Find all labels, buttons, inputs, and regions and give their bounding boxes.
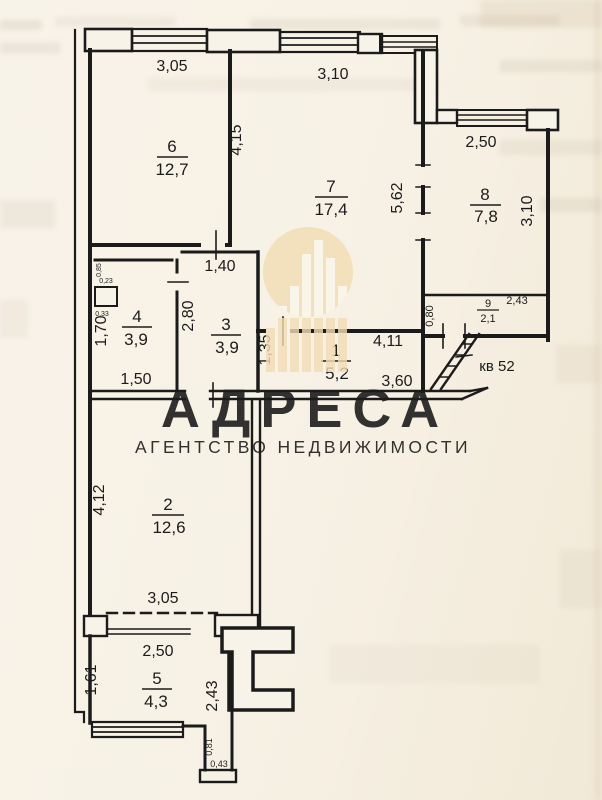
- dim-room5-top: 2,50: [142, 643, 173, 660]
- outer-left-wall: [75, 30, 84, 722]
- svg-text:6: 6: [167, 137, 176, 156]
- svg-text:9: 9: [485, 298, 491, 310]
- room-9-label: 9 2,1: [477, 298, 499, 325]
- dim-vent-c: 0,33: [95, 311, 109, 318]
- watermark-brand-text: АДРЕСА: [161, 379, 449, 439]
- watermark: АДРЕСА АГЕНТСТВО НЕДВИЖИМОСТИ: [135, 227, 471, 457]
- scanned-floor-plan-page: 6 12,7 7 17,4 8 7,8 9 2,1 4 3,9 3 3,9: [0, 0, 602, 800]
- balcony-window: [92, 722, 183, 737]
- watermark-tagline-text: АГЕНТСТВО НЕДВИЖИМОСТИ: [135, 437, 471, 457]
- room-2-label: 2 12,6: [152, 495, 186, 537]
- window-room6: [132, 29, 207, 51]
- svg-text:2: 2: [163, 495, 172, 514]
- svg-text:3,9: 3,9: [124, 330, 148, 349]
- svg-text:5: 5: [152, 669, 161, 688]
- dim-vent-b: 0,23: [99, 278, 113, 285]
- dim-room4-left: 1,70: [93, 315, 110, 346]
- svg-text:8: 8: [480, 185, 489, 204]
- dim-room8-top: 2,50: [465, 134, 496, 151]
- window-room7-left: [280, 32, 360, 52]
- svg-text:4,3: 4,3: [144, 692, 168, 711]
- dim-room8-right: 3,10: [519, 195, 536, 226]
- window-room8: [457, 110, 527, 126]
- room-8-label: 8 7,8: [470, 185, 501, 226]
- wall-pier: [527, 110, 558, 130]
- dim-room5-left: 1,61: [83, 664, 100, 695]
- svg-text:4: 4: [132, 307, 141, 326]
- dim-room2-left: 4,12: [91, 484, 108, 515]
- dim-room6-top: 3,05: [156, 58, 187, 75]
- dim-room9-left: 0,80: [424, 305, 436, 326]
- dim-stub-height: 0,81: [204, 738, 214, 756]
- svg-text:3: 3: [221, 315, 230, 334]
- vent-duct-box: [95, 287, 117, 306]
- wall-pier: [84, 616, 107, 636]
- dim-room4-bottom: 1,50: [120, 371, 151, 388]
- watermark-logo-bars-below: [266, 318, 347, 372]
- room2-window-sill: [107, 629, 190, 634]
- dim-room7-right: 5,62: [389, 182, 406, 213]
- svg-text:12,7: 12,7: [155, 160, 188, 179]
- wall-pier: [85, 29, 132, 51]
- dim-room9-top: 2,43: [506, 295, 527, 307]
- svg-text:12,6: 12,6: [152, 518, 185, 537]
- wall-jog-horizontal: [437, 110, 457, 123]
- svg-text:3,9: 3,9: [215, 338, 239, 357]
- dim-wall-3-4: 2,80: [180, 300, 197, 331]
- room-4-label: 4 3,9: [122, 307, 152, 349]
- floor-plan-drawing: 6 12,7 7 17,4 8 7,8 9 2,1 4 3,9 3 3,9: [0, 0, 602, 800]
- dim-room5-right: 2,43: [204, 680, 221, 711]
- dim-room2-bottom: 3,05: [147, 590, 178, 607]
- outer-bracket-wall: [222, 628, 293, 710]
- svg-text:7,8: 7,8: [474, 207, 498, 226]
- svg-text:2,1: 2,1: [480, 313, 495, 325]
- room-7-label: 7 17,4: [314, 177, 348, 219]
- dim-wall-6-7: 4,15: [228, 124, 245, 155]
- wall-jog-vertical: [415, 50, 437, 123]
- apartment-number-label: кв 52: [479, 358, 514, 375]
- wall-pier: [207, 30, 280, 52]
- wall-pier: [358, 34, 382, 53]
- svg-text:7: 7: [326, 177, 335, 196]
- room-6-label: 6 12,7: [155, 137, 188, 179]
- room-3-label: 3 3,9: [211, 315, 241, 357]
- dim-stub-width: 0,43: [210, 759, 228, 769]
- dim-hall-top: 4,11: [373, 333, 403, 350]
- dim-room3-door: 1,40: [204, 258, 235, 275]
- dim-vent-a: 0,85: [96, 263, 103, 277]
- dim-room7-top: 3,10: [317, 66, 348, 83]
- room-5-label: 5 4,3: [142, 669, 172, 711]
- svg-text:17,4: 17,4: [314, 200, 347, 219]
